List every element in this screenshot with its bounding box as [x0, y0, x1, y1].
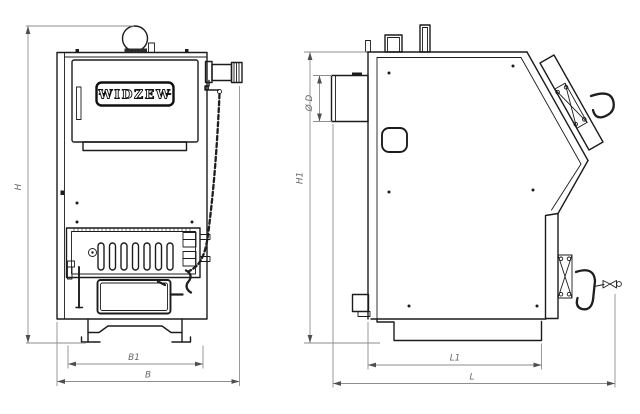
regulator-body: [212, 65, 232, 81]
dim-label-L: L: [470, 373, 475, 383]
top-bolt: [76, 49, 80, 53]
lower-door-side: [546, 214, 622, 319]
dim-L: L: [333, 124, 615, 388]
cap-circle: [123, 26, 148, 51]
pipe-collar: [352, 73, 362, 76]
grate-slots: [98, 243, 173, 270]
upper-door: WIDZEW: [72, 60, 198, 151]
cap-base: [125, 49, 148, 53]
upper-door-side: [540, 55, 614, 150]
brand-text: WIDZEW: [97, 87, 171, 102]
dim-label-B1: B1: [128, 353, 140, 363]
boiler-technical-drawing: WIDZEW: [0, 0, 640, 414]
drawing-canvas: WIDZEW: [0, 0, 640, 414]
dim-label-OD: Ø D: [304, 95, 315, 113]
top-bolt: [185, 49, 189, 53]
rear-plate: [366, 41, 371, 53]
flue-pipe: [332, 73, 369, 122]
side-view-boiler: [332, 25, 622, 341]
door-lower-lip: [83, 142, 187, 151]
dim-label-B: B: [145, 371, 151, 381]
dim-H: H: [14, 26, 134, 343]
dim-label-H: H: [14, 183, 24, 190]
base-side: [377, 319, 542, 341]
door-latch-slot: [77, 87, 82, 120]
base-legs-front: [82, 319, 191, 342]
pipe-stub: [420, 25, 430, 52]
lower-door-handle: [576, 270, 595, 309]
side-hinge-pin: [61, 191, 65, 196]
dim-B: B: [57, 86, 240, 386]
opening-top-hatch: [74, 228, 190, 231]
front-view-boiler: WIDZEW: [57, 26, 242, 342]
dim-label-H1: H1: [296, 172, 306, 184]
regulator-chain: [189, 94, 220, 272]
boiler-body-side: [368, 52, 588, 319]
draft-regulator: [186, 62, 242, 293]
top-cap: [123, 26, 155, 53]
dim-OD: Ø D: [304, 76, 332, 122]
cap-stub: [149, 43, 155, 53]
opening-left-bracket: [68, 261, 75, 279]
wing-bolt: [603, 281, 621, 289]
logo-plate: WIDZEW: [97, 83, 174, 106]
dimensions: H B1 B Ø D H1: [14, 26, 615, 388]
drawer-hook: [158, 282, 165, 286]
dim-B1: B1: [68, 346, 203, 369]
top-connections: [366, 25, 431, 52]
upper-door-handle: [591, 94, 614, 118]
cleanout-hole: [382, 128, 407, 152]
dim-label-L1: L1: [450, 354, 461, 364]
